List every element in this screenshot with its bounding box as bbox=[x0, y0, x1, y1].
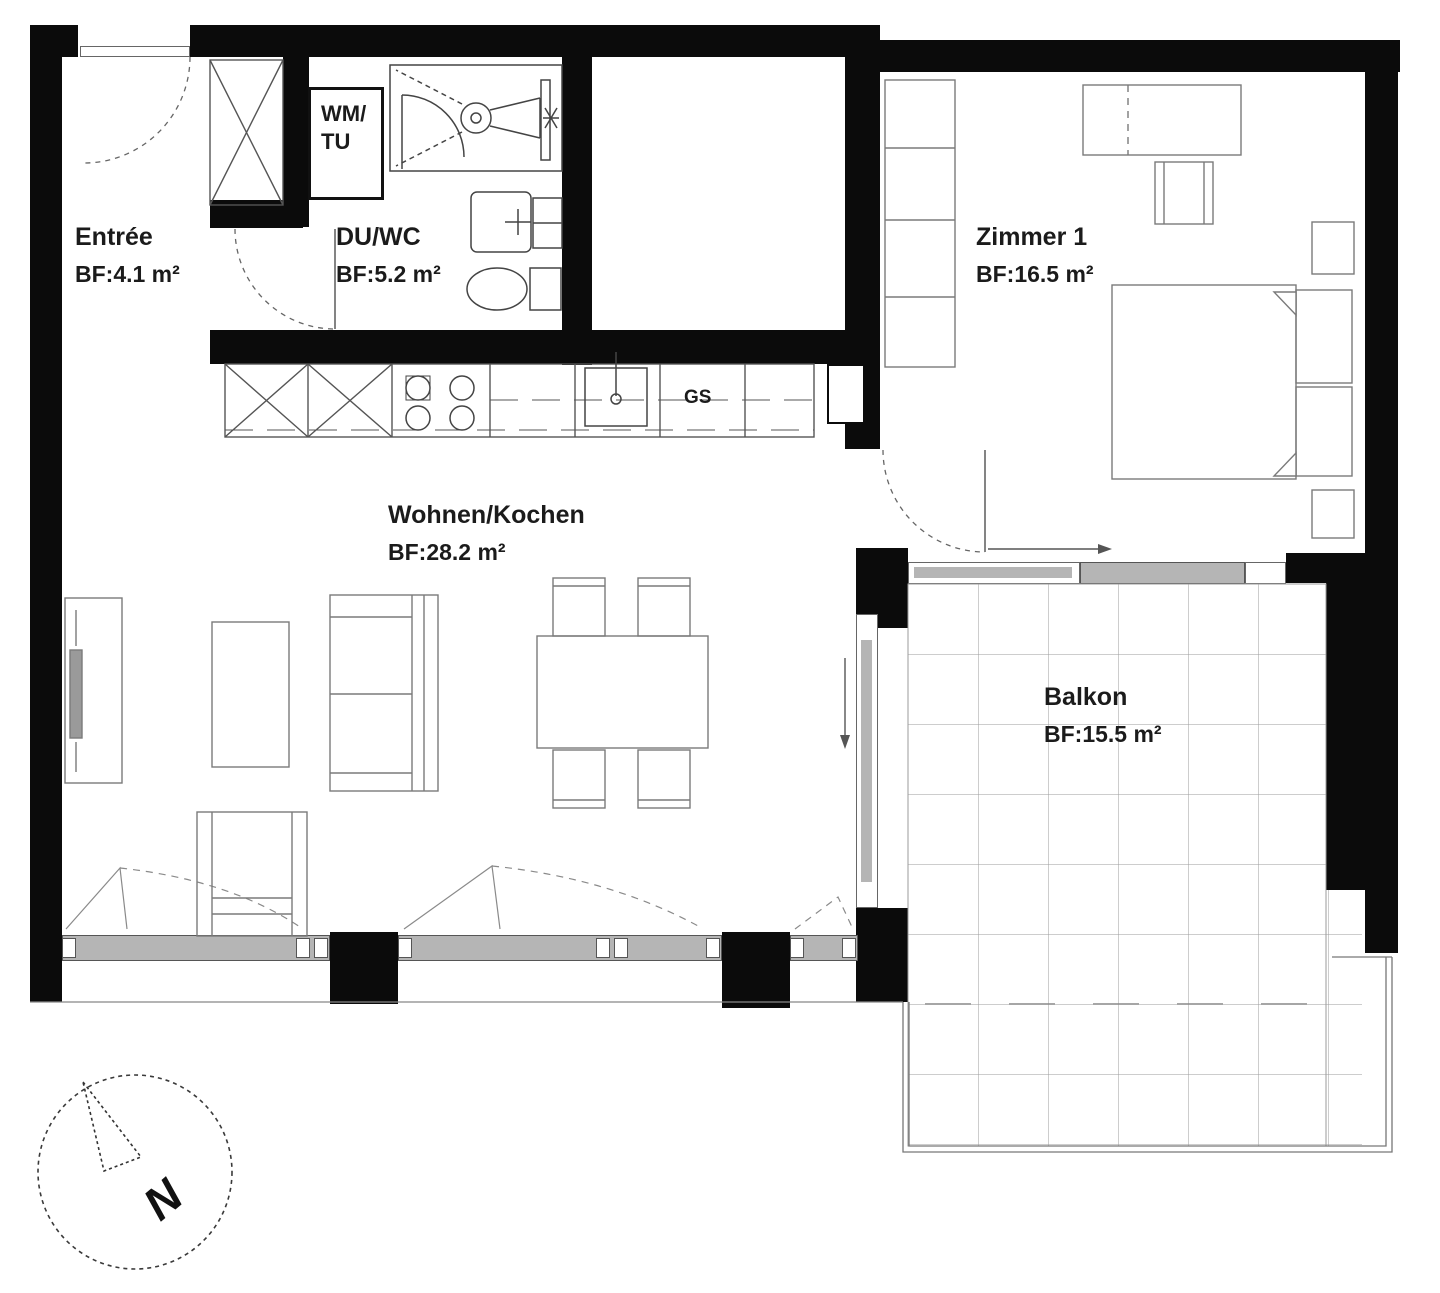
bed bbox=[1112, 285, 1352, 479]
zimmer1-label: Zimmer 1 BF:16.5 m² bbox=[976, 224, 1094, 288]
compass-circle bbox=[38, 1075, 232, 1269]
room-area-zimmer1: BF:16.5 m² bbox=[976, 261, 1094, 288]
dining-table bbox=[537, 636, 708, 748]
kitchen-counter bbox=[225, 364, 814, 437]
room-name-wohnen: Wohnen/Kochen bbox=[388, 502, 585, 530]
room-name-zimmer1: Zimmer 1 bbox=[976, 224, 1094, 252]
compass-north-label: N bbox=[133, 1168, 192, 1230]
plan-linework: N bbox=[0, 0, 1440, 1293]
shower bbox=[390, 65, 562, 171]
stove bbox=[406, 376, 474, 430]
desk bbox=[1083, 85, 1241, 155]
entrance-door-swing bbox=[84, 57, 190, 163]
floor-plan: N Entrée BF:4.1 m² DU/WC BF:5.2 m² Zimme… bbox=[0, 0, 1440, 1293]
entree-label: Entrée BF:4.1 m² bbox=[75, 224, 180, 288]
window-swings bbox=[66, 866, 852, 929]
washbasin bbox=[471, 192, 562, 252]
dishwasher-label: GS bbox=[684, 387, 711, 409]
wardrobe bbox=[885, 80, 955, 367]
doors bbox=[84, 57, 985, 552]
room-area-balkon: BF:15.5 m² bbox=[1044, 721, 1162, 748]
duwc-door-swing bbox=[235, 229, 335, 329]
washer-dryer-line2: TU bbox=[321, 128, 381, 156]
toilet bbox=[467, 268, 561, 310]
balcony-tile-grid bbox=[908, 584, 1362, 1146]
dining-chair bbox=[553, 578, 690, 808]
nightstand bbox=[1312, 222, 1354, 538]
tv-sideboard bbox=[65, 598, 122, 783]
entree-closet bbox=[210, 60, 283, 205]
room-name-balkon: Balkon bbox=[1044, 684, 1162, 712]
wohnen-label: Wohnen/Kochen BF:28.2 m² bbox=[388, 502, 585, 566]
room-name-duwc: DU/WC bbox=[336, 224, 441, 252]
sofa bbox=[330, 595, 438, 791]
washer-dryer-box: WM/ TU bbox=[308, 87, 384, 200]
room-area-entree: BF:4.1 m² bbox=[75, 261, 180, 288]
compass: N bbox=[38, 1075, 232, 1269]
room-name-entree: Entrée bbox=[75, 224, 180, 252]
coffee-table bbox=[212, 622, 289, 767]
zimmer-door-swing bbox=[883, 450, 985, 552]
armchair bbox=[197, 812, 307, 936]
kitchen-sink bbox=[585, 352, 647, 426]
washer-dryer-line1: WM/ bbox=[321, 100, 381, 128]
balkon-label: Balkon BF:15.5 m² bbox=[1044, 684, 1162, 748]
compass-needle-icon bbox=[83, 1082, 141, 1171]
room-area-duwc: BF:5.2 m² bbox=[336, 261, 441, 288]
room-area-wohnen: BF:28.2 m² bbox=[388, 539, 585, 566]
duwc-label: DU/WC BF:5.2 m² bbox=[336, 224, 441, 288]
desk-chair bbox=[1155, 162, 1213, 224]
